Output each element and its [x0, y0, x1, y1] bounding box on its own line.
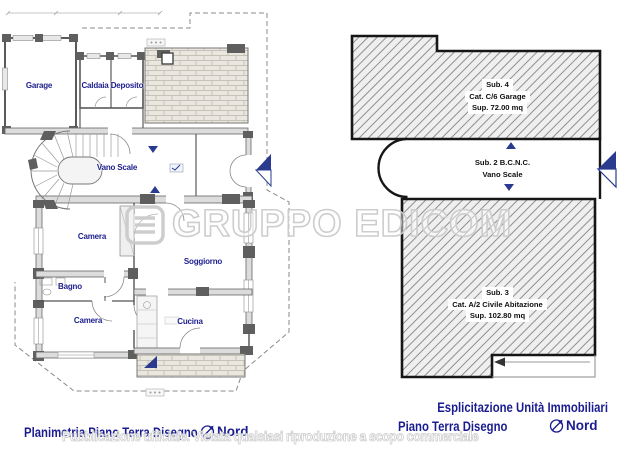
room-label-vano-scale: Vano Scale — [88, 163, 146, 172]
room-label-deposito: Deposito — [104, 81, 150, 90]
room-label-cucina: Cucina — [160, 317, 220, 326]
room-label-soggiorno: Soggiorno — [173, 257, 233, 266]
sub2-line2: Vano Scale — [478, 169, 526, 181]
compass-icon — [200, 424, 215, 439]
unit-label-sub4: Sub. 4 Cat. C/6 Garage Sup. 72.00 mq — [420, 79, 575, 114]
unit-label-sub2: Sub. 2 B.C.N.C. Vano Scale — [440, 157, 565, 180]
left-north-indicator: Nord — [200, 424, 249, 439]
unit-label-sub3: Sub. 3 Cat. A/2 Civile Abitazione Sup. 1… — [420, 287, 575, 322]
sub4-line2: Cat. C/6 Garage — [465, 91, 530, 103]
left-plan-caption: Planimetria Piano Terra Disegno — [24, 425, 198, 440]
left-plan-group — [2, 11, 289, 396]
room-label-camera-1: Camera — [62, 232, 122, 241]
sub4-line3: Sup. 72.00 mq — [468, 102, 527, 114]
sub3-line2: Cat. A/2 Civile Abitazione — [448, 299, 547, 311]
right-north-label: Nord — [566, 418, 598, 433]
floorplan-drawing — [0, 0, 620, 450]
room-label-garage: Garage — [16, 81, 62, 90]
room-label-bagno: Bagno — [45, 282, 95, 291]
left-north-label: Nord — [217, 424, 249, 439]
sub2-line1: Sub. 2 B.C.N.C. — [471, 157, 534, 169]
right-north-indicator: Nord — [549, 418, 598, 433]
right-caption-line1: Esplicitazione Unità Immobiliari — [432, 400, 608, 415]
right-caption-line2: Piano Terra Disegno — [398, 419, 507, 434]
sub3-line3: Sup. 102.80 mq — [466, 310, 529, 322]
room-label-camera-2: Camera — [58, 316, 118, 325]
sub4-line1: Sub. 4 — [482, 79, 513, 91]
compass-icon — [549, 418, 564, 433]
sub2-stair-arc — [379, 139, 408, 197]
document-page: Garage Caldaia Deposito Vano Scale Camer… — [0, 0, 620, 450]
sub3-line1: Sub. 3 — [482, 287, 513, 299]
